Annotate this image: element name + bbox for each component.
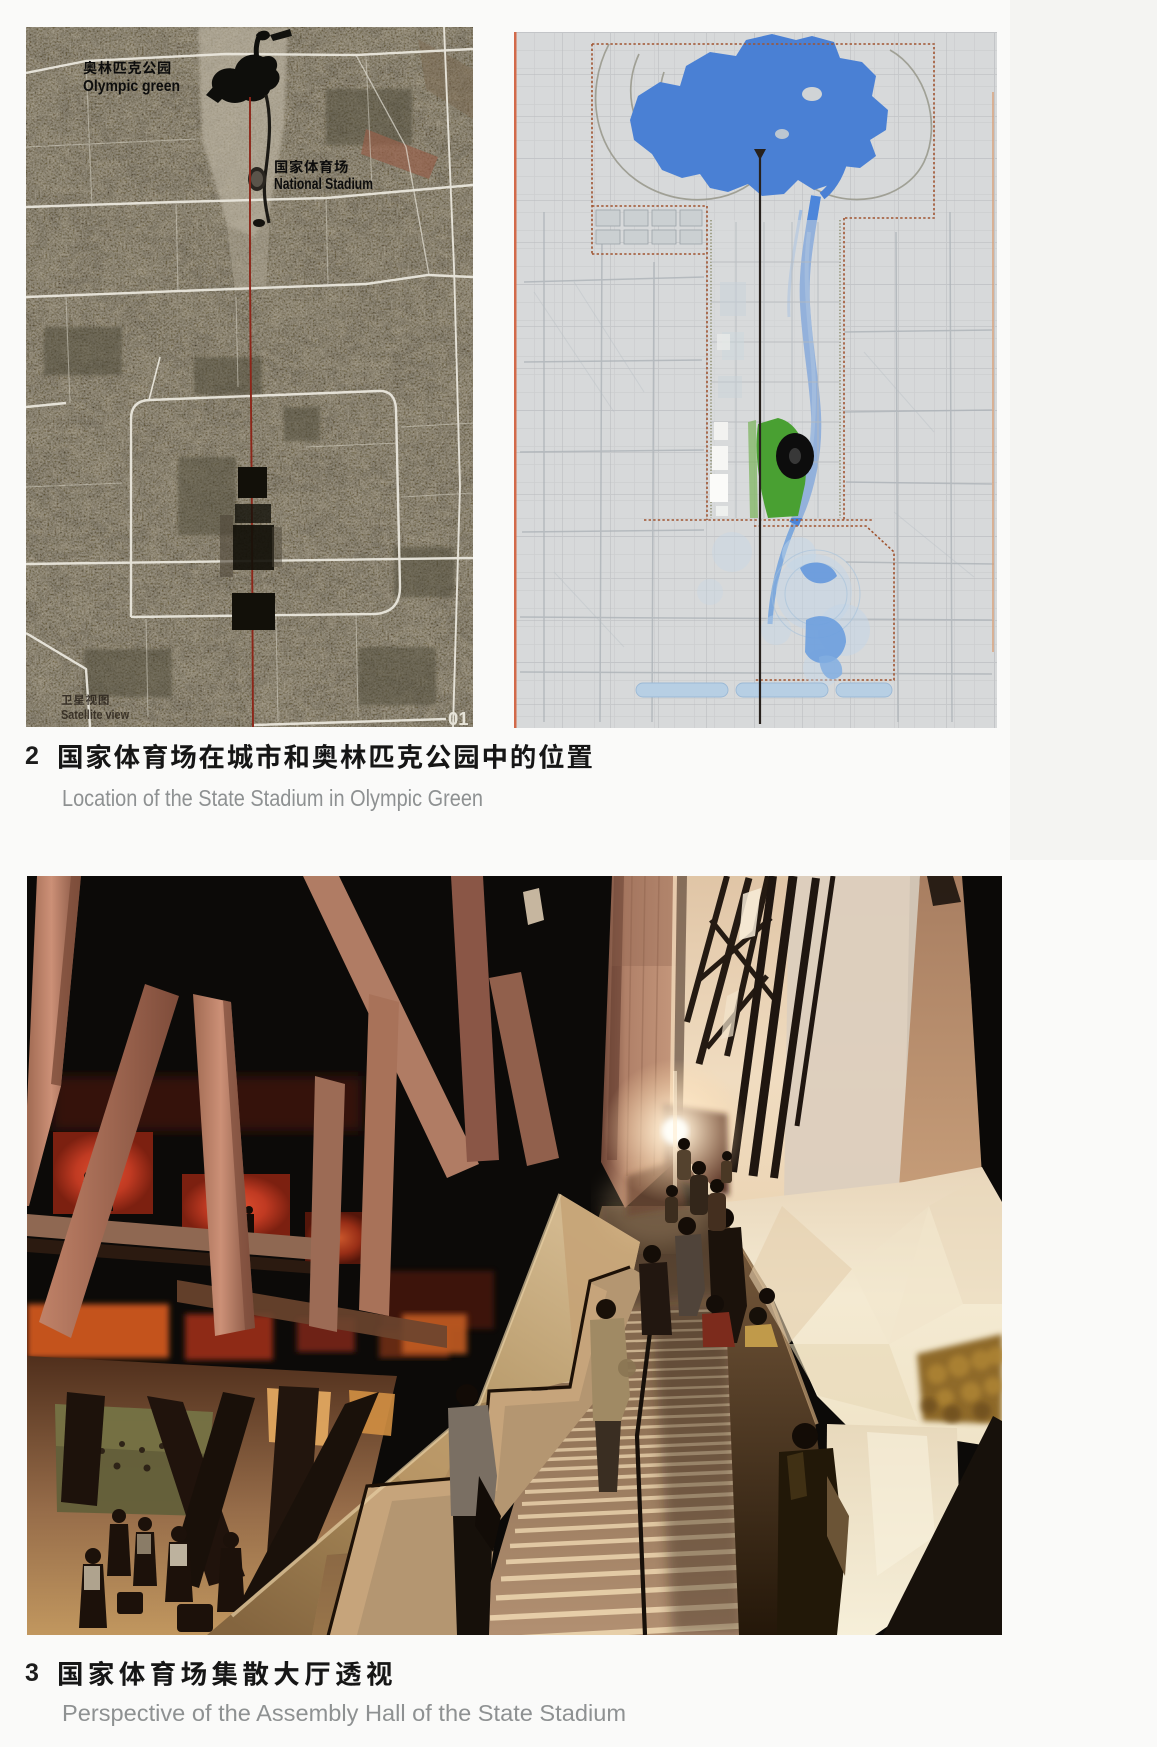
svg-text:Perspective of the Assembly Ha: Perspective of the Assembly Hall of the … <box>62 1700 626 1726</box>
svg-text:National Stadium: National Stadium <box>274 176 373 193</box>
svg-text:2: 2 <box>25 742 39 770</box>
svg-text:Satellite view: Satellite view <box>61 708 129 722</box>
svg-text:Location of the State Stadium: Location of the State Stadium in Olympic… <box>62 785 483 811</box>
svg-text:Olympic green: Olympic green <box>83 78 180 95</box>
svg-text:01: 01 <box>448 708 469 727</box>
svg-text:3: 3 <box>25 1659 39 1687</box>
